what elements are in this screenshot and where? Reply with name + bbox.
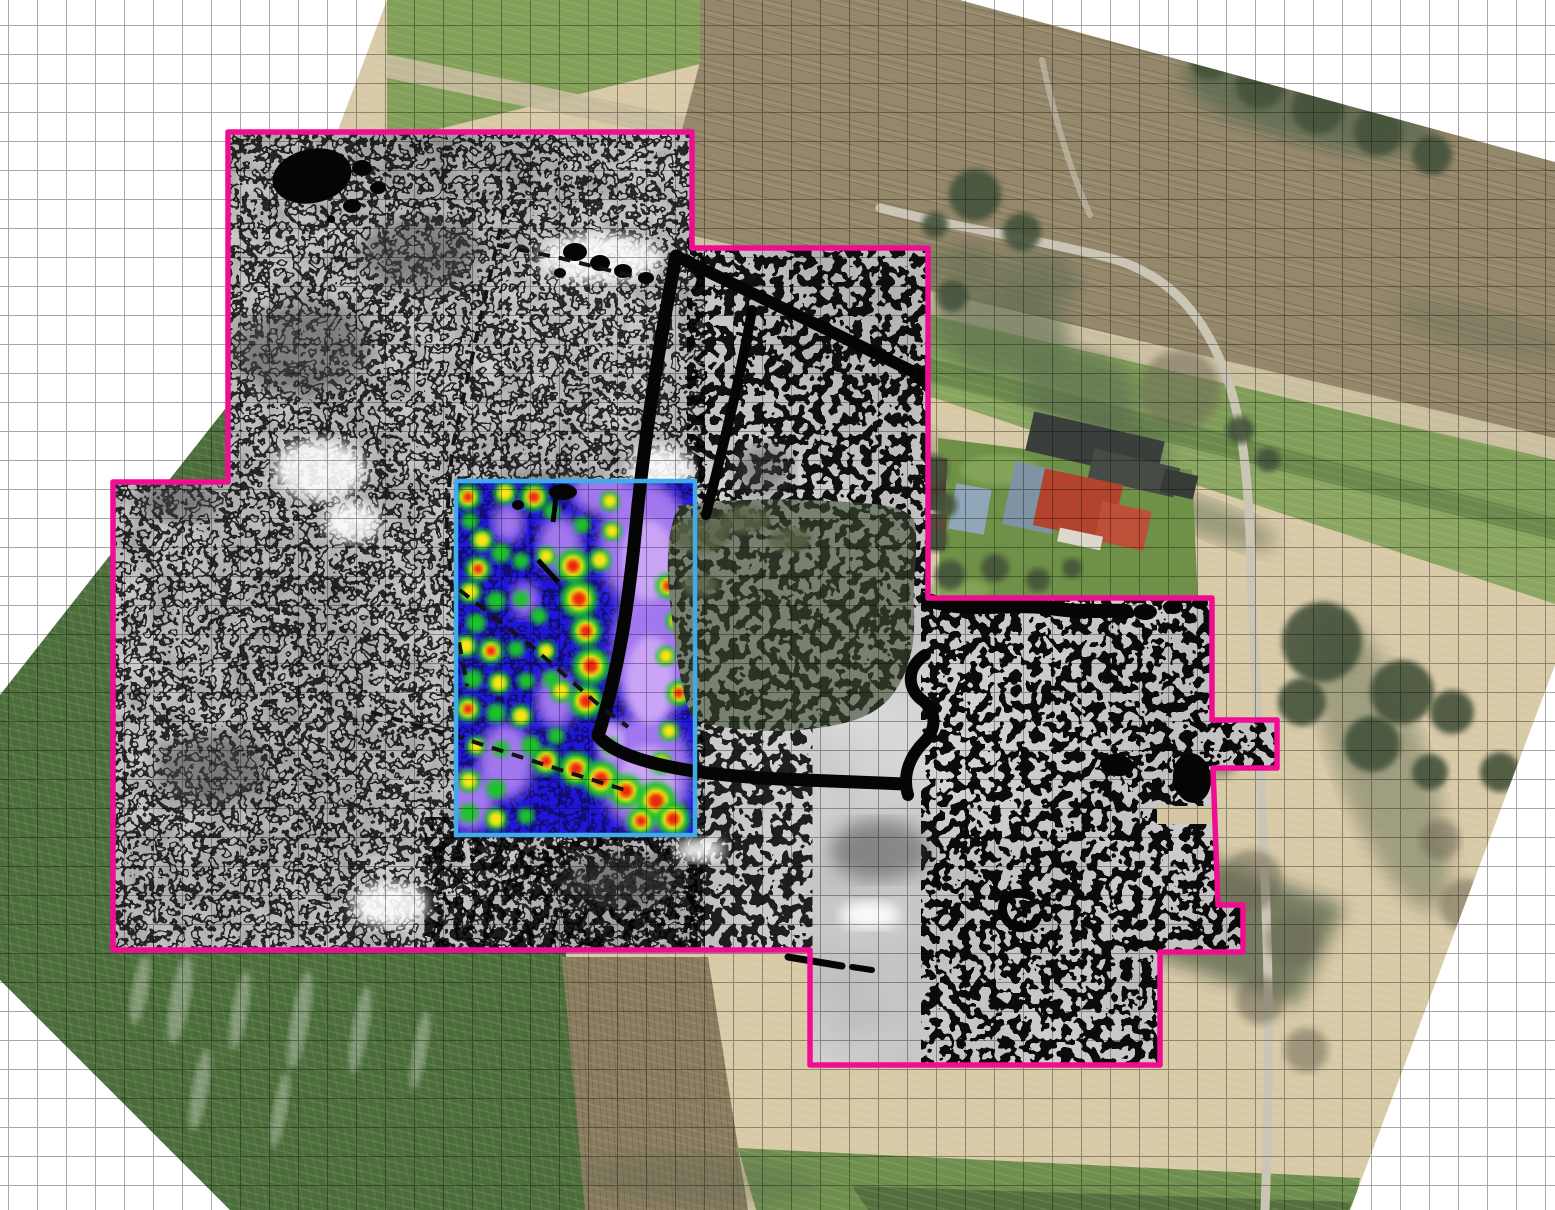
map-svg <box>0 0 1555 1210</box>
map-canvas[interactable] <box>0 0 1555 1210</box>
coordinate-grid <box>0 0 1555 1210</box>
